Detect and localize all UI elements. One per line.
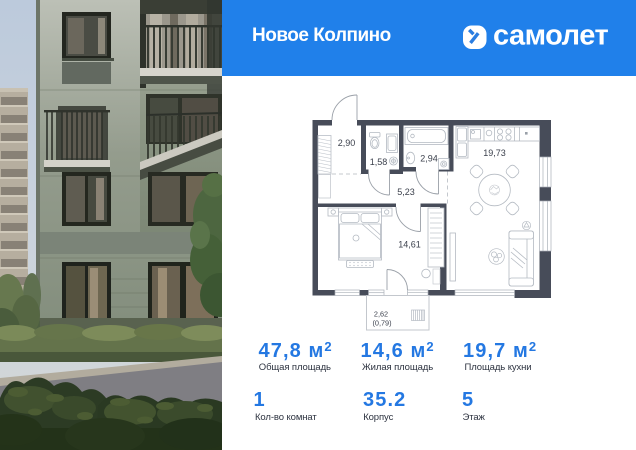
svg-text:1,58: 1,58 — [370, 157, 388, 167]
svg-text:2,62: 2,62 — [374, 310, 388, 319]
svg-text:2,94: 2,94 — [420, 154, 438, 164]
svg-text:14,61: 14,61 — [398, 240, 421, 250]
svg-text:2,90: 2,90 — [338, 138, 356, 148]
svg-text:(0,79): (0,79) — [372, 319, 391, 328]
svg-text:самолет: самолет — [493, 23, 608, 52]
svg-text:19,73: 19,73 — [483, 148, 506, 158]
svg-text:5,23: 5,23 — [397, 187, 415, 197]
